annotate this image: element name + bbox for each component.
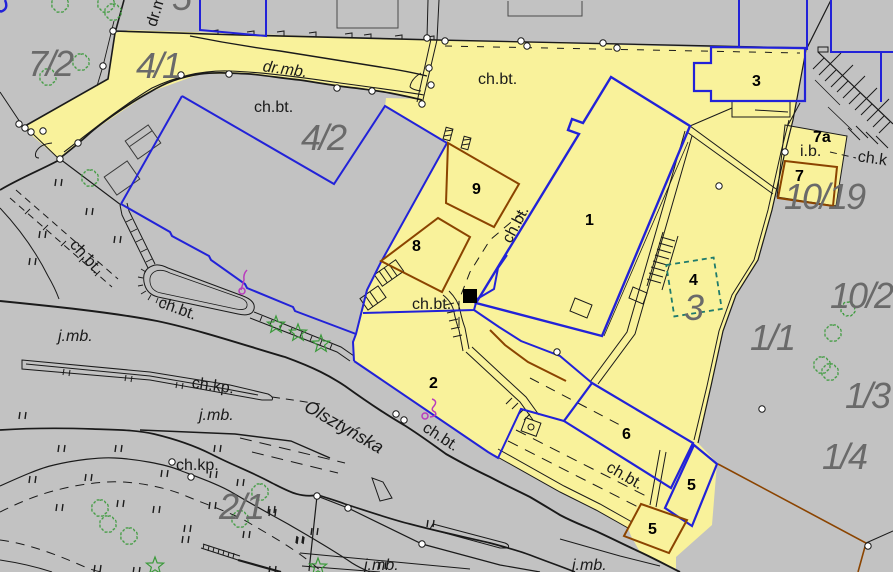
svg-text:3: 3 [684,287,704,328]
svg-text:7/2: 7/2 [28,43,74,84]
svg-text:3: 3 [752,73,761,90]
svg-text:1/3: 1/3 [845,375,891,416]
svg-text:1/4: 1/4 [822,436,867,477]
svg-text:4/1: 4/1 [136,45,180,86]
svg-text:j.mb.: j.mb. [56,328,93,345]
svg-text:ch.bt.: ch.bt. [254,99,293,116]
svg-text:5: 5 [648,521,657,538]
svg-text:2/1: 2/1 [218,486,263,527]
svg-text:1: 1 [585,212,594,229]
svg-text:ch.kp.: ch.kp. [176,457,219,474]
svg-text:5: 5 [687,477,696,494]
svg-text:5: 5 [172,0,193,18]
svg-text:7a: 7a [813,129,831,146]
svg-text:2: 2 [429,375,438,392]
svg-text:4: 4 [689,272,698,289]
svg-text:1/1: 1/1 [750,317,794,358]
svg-text:j.mb.: j.mb. [570,557,607,572]
svg-text:8: 8 [412,238,421,255]
svg-text:j.mb.: j.mb. [197,407,234,424]
svg-text:10/20: 10/20 [830,275,893,316]
svg-text:6: 6 [622,426,631,443]
svg-text:ch.bt.: ch.bt. [412,296,451,313]
svg-text:ch.bt.: ch.bt. [478,71,517,88]
svg-text:j.mb.: j.mb. [362,557,399,572]
svg-text:7: 7 [795,168,804,185]
svg-text:4/2: 4/2 [301,117,347,158]
svg-text:9: 9 [472,181,481,198]
